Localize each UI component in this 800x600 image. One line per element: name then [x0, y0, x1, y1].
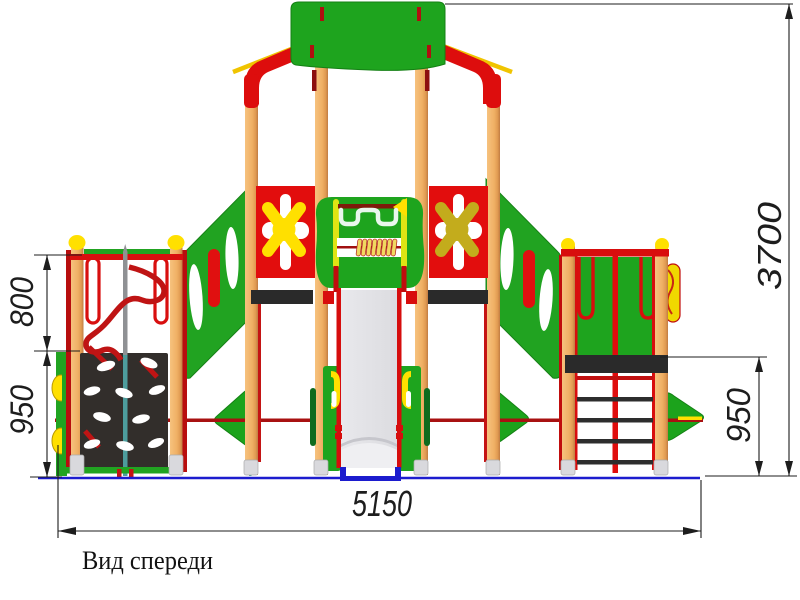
svg-text:3700: 3700 — [751, 201, 788, 290]
svg-text:950: 950 — [4, 385, 40, 435]
svg-text:950: 950 — [720, 387, 757, 443]
svg-text:Вид спереди: Вид спереди — [82, 546, 213, 575]
svg-text:5150: 5150 — [352, 483, 412, 524]
svg-text:800: 800 — [4, 277, 40, 327]
